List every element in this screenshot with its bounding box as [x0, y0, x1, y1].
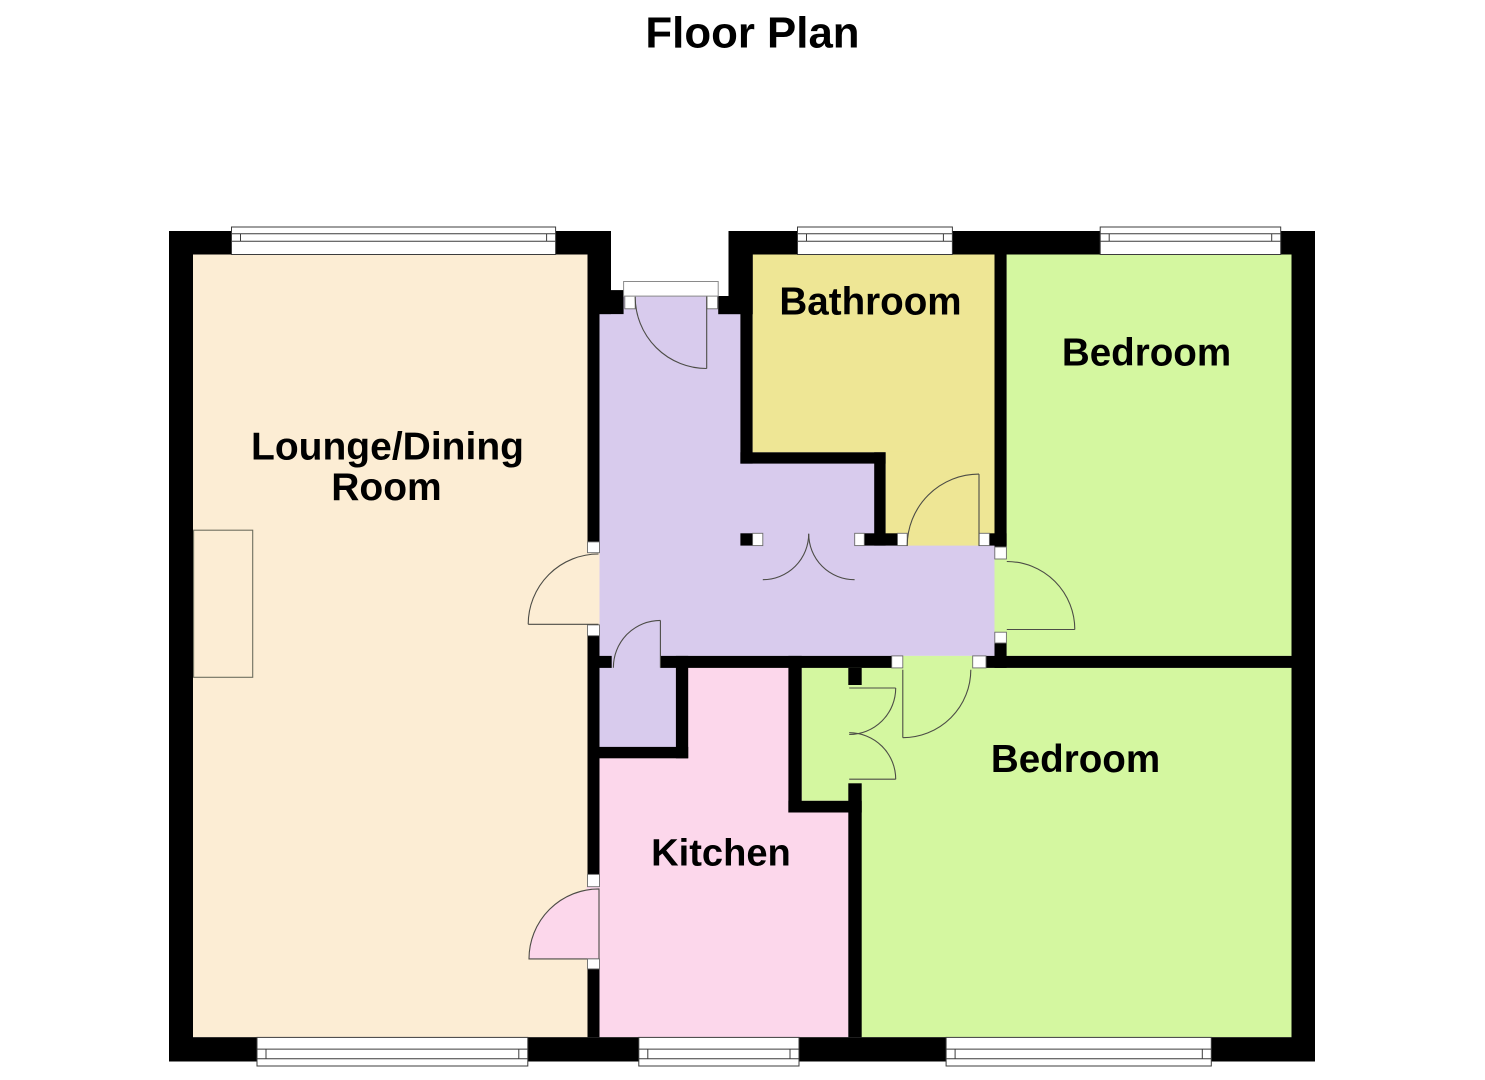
svg-text:Bedroom: Bedroom [991, 738, 1160, 781]
svg-text:Bathroom: Bathroom [779, 281, 961, 324]
svg-text:Floor Plan: Floor Plan [645, 9, 859, 58]
svg-text:Kitchen: Kitchen [651, 832, 791, 874]
svg-text:Room: Room [331, 466, 442, 509]
svg-text:Lounge/Dining: Lounge/Dining [251, 426, 524, 469]
svg-text:Bedroom: Bedroom [1062, 331, 1231, 374]
